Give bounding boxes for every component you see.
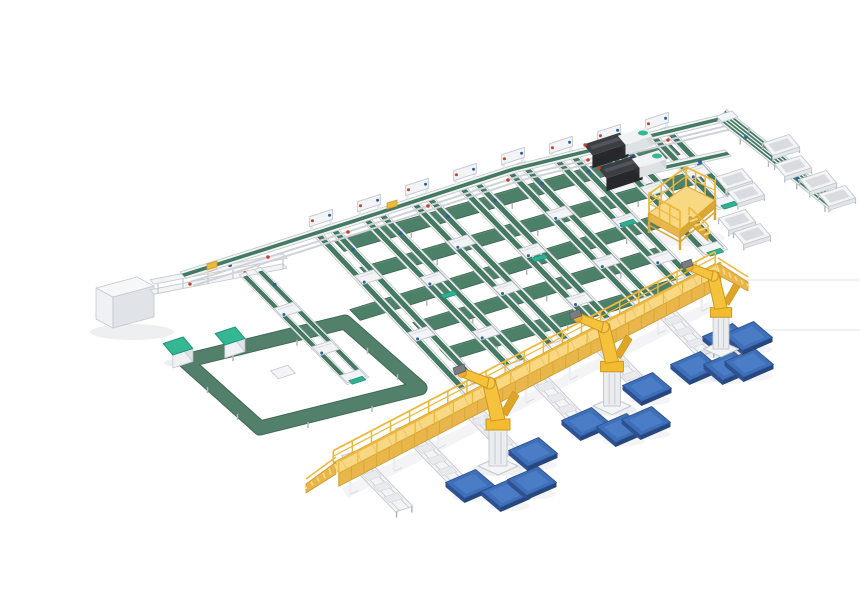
robot-base — [710, 308, 731, 318]
head-red-dot — [551, 146, 554, 149]
machine-red-dot — [597, 166, 600, 169]
robot-pedestal — [489, 430, 507, 466]
lane-sensor — [399, 231, 403, 235]
head-blue-dot — [616, 129, 619, 132]
head-blue-dot — [568, 141, 571, 144]
lane-sensor — [351, 247, 355, 251]
e2-blue-dot — [698, 160, 702, 164]
head-red-dot — [455, 173, 458, 176]
factory-render-canvas — [40, 16, 860, 596]
lane-sensor — [446, 215, 450, 219]
machine-teal-dot — [638, 131, 648, 136]
head-red-dot — [311, 219, 314, 222]
carriage-sensor — [320, 352, 323, 355]
loop-carriage — [271, 365, 296, 378]
carriage-sensor — [656, 261, 659, 264]
head-red-dot — [407, 188, 410, 191]
spine-red-dot — [506, 178, 510, 182]
lane-sensor — [493, 199, 497, 203]
d1-blue-speck — [744, 135, 748, 139]
head-blue-dot — [376, 199, 379, 202]
carriage-sensor — [363, 281, 366, 284]
carriage-sensor — [481, 336, 484, 339]
spine-red-dot — [346, 230, 350, 234]
carriage-sensor — [527, 254, 530, 257]
carriage-sensor — [692, 175, 695, 178]
machine-red-dot — [583, 143, 586, 146]
carriage-sensor — [282, 313, 285, 316]
head-blue-dot — [328, 214, 331, 217]
head-blue-dot — [424, 183, 427, 186]
machine-shadow — [90, 324, 174, 340]
robot-base — [486, 419, 510, 430]
carriage-sensor — [601, 265, 604, 268]
carriage-sensor — [416, 337, 419, 340]
head-blue-dot — [520, 152, 523, 155]
spine-red-dot — [586, 158, 590, 162]
carriage-sensor — [456, 246, 459, 249]
robot-pedestal — [713, 317, 729, 349]
carriage-sensor — [574, 303, 577, 306]
carriage-sensor — [501, 292, 504, 295]
spine-red-dot — [426, 204, 430, 208]
head-red-dot — [503, 157, 506, 160]
carriage-sensor — [428, 282, 431, 285]
head-red-dot — [647, 122, 650, 125]
head-red-dot — [599, 134, 602, 137]
head-blue-dot — [472, 168, 475, 171]
gantry-ramp-left — [306, 462, 336, 493]
production-line-render — [40, 16, 860, 596]
spine-red-dot — [666, 138, 670, 142]
robot-pedestal — [604, 372, 621, 406]
robot-base — [601, 361, 624, 371]
head-blue-dot — [664, 117, 667, 120]
machine-teal-dot — [652, 154, 662, 159]
lane-sensor — [273, 283, 277, 287]
carriage-sensor — [554, 217, 557, 220]
lane-sensor — [587, 169, 591, 173]
spine-red-dot — [266, 255, 270, 259]
lane-sensor — [540, 182, 544, 186]
head-red-dot — [359, 204, 362, 207]
